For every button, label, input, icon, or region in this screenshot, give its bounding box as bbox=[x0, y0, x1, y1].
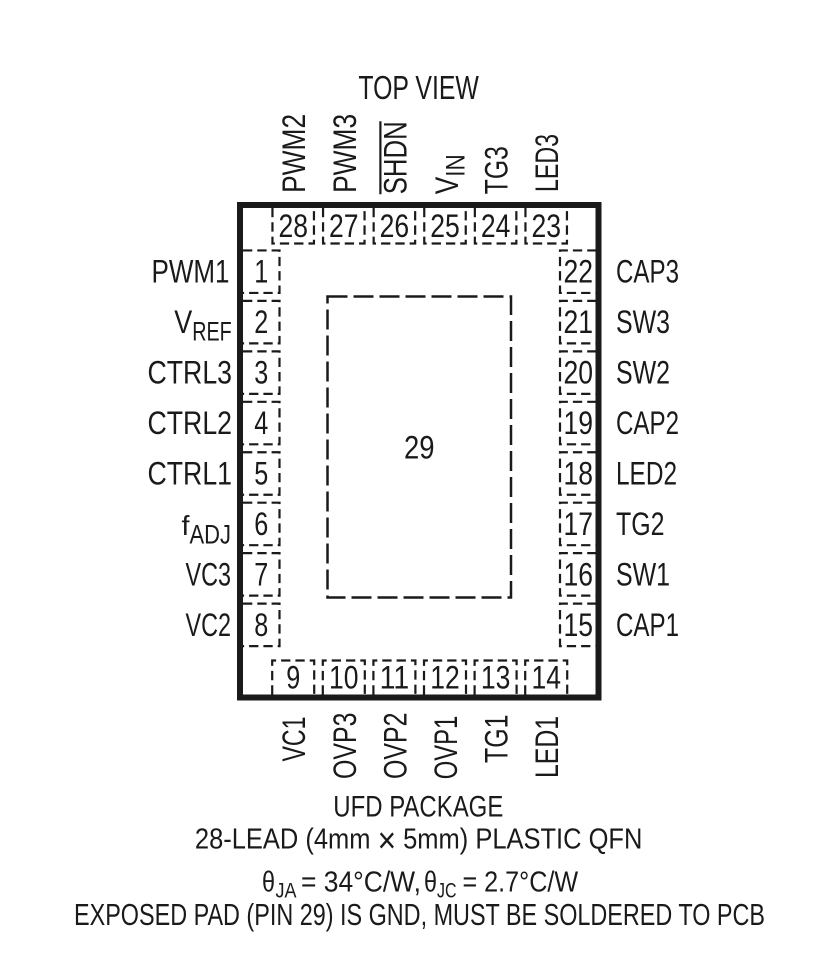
svg-text:LED1: LED1 bbox=[529, 716, 565, 778]
svg-text:θ: θ bbox=[262, 867, 275, 899]
svg-text:fADJ: fADJ bbox=[182, 510, 232, 550]
svg-text:SW2: SW2 bbox=[616, 355, 670, 391]
svg-text:PWM3: PWM3 bbox=[327, 114, 363, 193]
svg-text:18: 18 bbox=[563, 456, 593, 492]
svg-text:CTRL3: CTRL3 bbox=[148, 355, 233, 391]
svg-text:CTRL2: CTRL2 bbox=[148, 405, 233, 441]
svg-text:PWM1: PWM1 bbox=[152, 254, 230, 290]
svg-text:OVP2: OVP2 bbox=[377, 713, 413, 780]
svg-text:24: 24 bbox=[481, 208, 511, 244]
svg-text:28: 28 bbox=[278, 208, 308, 244]
svg-text:VC1: VC1 bbox=[276, 717, 312, 762]
svg-text:11: 11 bbox=[380, 660, 410, 696]
svg-text:LED3: LED3 bbox=[529, 134, 565, 192]
svg-text:VREF: VREF bbox=[174, 304, 232, 347]
svg-text:14: 14 bbox=[531, 660, 561, 696]
svg-text:25: 25 bbox=[430, 208, 460, 244]
svg-text:28-LEAD (4mm × 5mm) PLASTIC QF: 28-LEAD (4mm × 5mm) PLASTIC QFN bbox=[195, 820, 643, 861]
svg-text:VC3: VC3 bbox=[186, 556, 232, 592]
svg-text:CAP1: CAP1 bbox=[616, 607, 679, 643]
svg-text:OVP1: OVP1 bbox=[428, 716, 464, 780]
svg-text:16: 16 bbox=[563, 556, 593, 592]
svg-text:2: 2 bbox=[254, 304, 268, 340]
svg-text:20: 20 bbox=[563, 355, 593, 391]
svg-text:7: 7 bbox=[254, 556, 268, 592]
svg-text:EXPOSED PAD (PIN 29) IS GND, M: EXPOSED PAD (PIN 29) IS GND, MUST BE SOL… bbox=[74, 897, 765, 932]
svg-text:4: 4 bbox=[254, 405, 268, 441]
svg-text:CTRL1: CTRL1 bbox=[148, 456, 233, 492]
svg-text:= 2.7°C/W: = 2.7°C/W bbox=[463, 867, 579, 899]
svg-text:TG3: TG3 bbox=[479, 146, 515, 194]
svg-text:12: 12 bbox=[430, 660, 460, 696]
svg-text:8: 8 bbox=[254, 607, 268, 643]
svg-text:19: 19 bbox=[563, 405, 593, 441]
svg-text:VC2: VC2 bbox=[186, 607, 232, 643]
svg-text:SHDN: SHDN bbox=[377, 121, 413, 194]
svg-text:TG1: TG1 bbox=[479, 715, 515, 764]
svg-text:6: 6 bbox=[254, 506, 268, 542]
svg-text:23: 23 bbox=[531, 208, 561, 244]
svg-text:SW1: SW1 bbox=[616, 556, 670, 592]
svg-text:TG2: TG2 bbox=[616, 506, 665, 542]
svg-text:TOP VIEW: TOP VIEW bbox=[358, 69, 479, 106]
svg-text:PWM2: PWM2 bbox=[276, 114, 312, 193]
svg-text:3: 3 bbox=[254, 355, 268, 391]
svg-text:CAP2: CAP2 bbox=[616, 405, 679, 441]
svg-text:= 34°C/W,: = 34°C/W, bbox=[301, 867, 421, 899]
svg-text:OVP3: OVP3 bbox=[327, 713, 363, 780]
svg-text:SW3: SW3 bbox=[616, 304, 670, 340]
svg-text:26: 26 bbox=[380, 208, 410, 244]
svg-text:1: 1 bbox=[254, 254, 268, 290]
svg-text:θ: θ bbox=[424, 867, 437, 899]
svg-text:27: 27 bbox=[329, 208, 359, 244]
svg-text:13: 13 bbox=[481, 660, 511, 696]
svg-text:9: 9 bbox=[286, 660, 300, 696]
svg-text:10: 10 bbox=[329, 660, 359, 696]
svg-text:CAP3: CAP3 bbox=[616, 254, 679, 290]
svg-text:17: 17 bbox=[563, 506, 593, 542]
svg-text:29: 29 bbox=[404, 430, 435, 466]
svg-text:LED2: LED2 bbox=[616, 456, 677, 492]
svg-text:22: 22 bbox=[563, 254, 593, 290]
svg-text:15: 15 bbox=[563, 607, 593, 643]
svg-text:21: 21 bbox=[563, 304, 593, 340]
svg-text:UFD PACKAGE: UFD PACKAGE bbox=[333, 791, 503, 824]
svg-text:VIN: VIN bbox=[429, 154, 471, 194]
svg-text:5: 5 bbox=[254, 456, 268, 492]
